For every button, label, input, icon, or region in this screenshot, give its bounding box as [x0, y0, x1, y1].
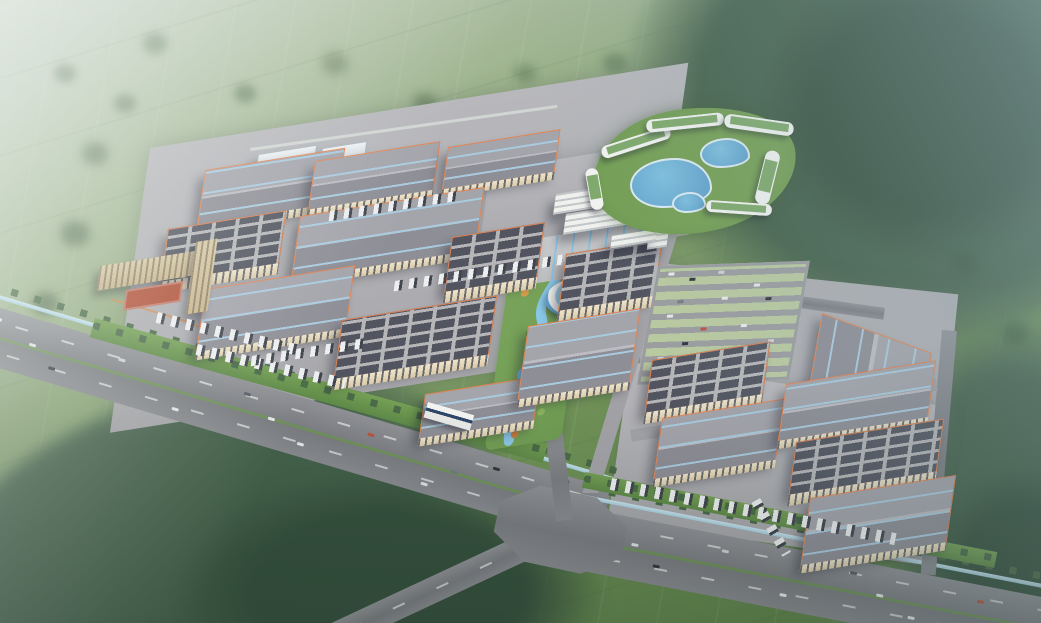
- resort-lake-upper: [700, 138, 750, 168]
- tree-clumps: [0, 0, 10, 7]
- resort-lake-small: [672, 192, 706, 213]
- parked-cars: [661, 269, 668, 272]
- aerial-rendering-industrial-park: [0, 0, 1041, 623]
